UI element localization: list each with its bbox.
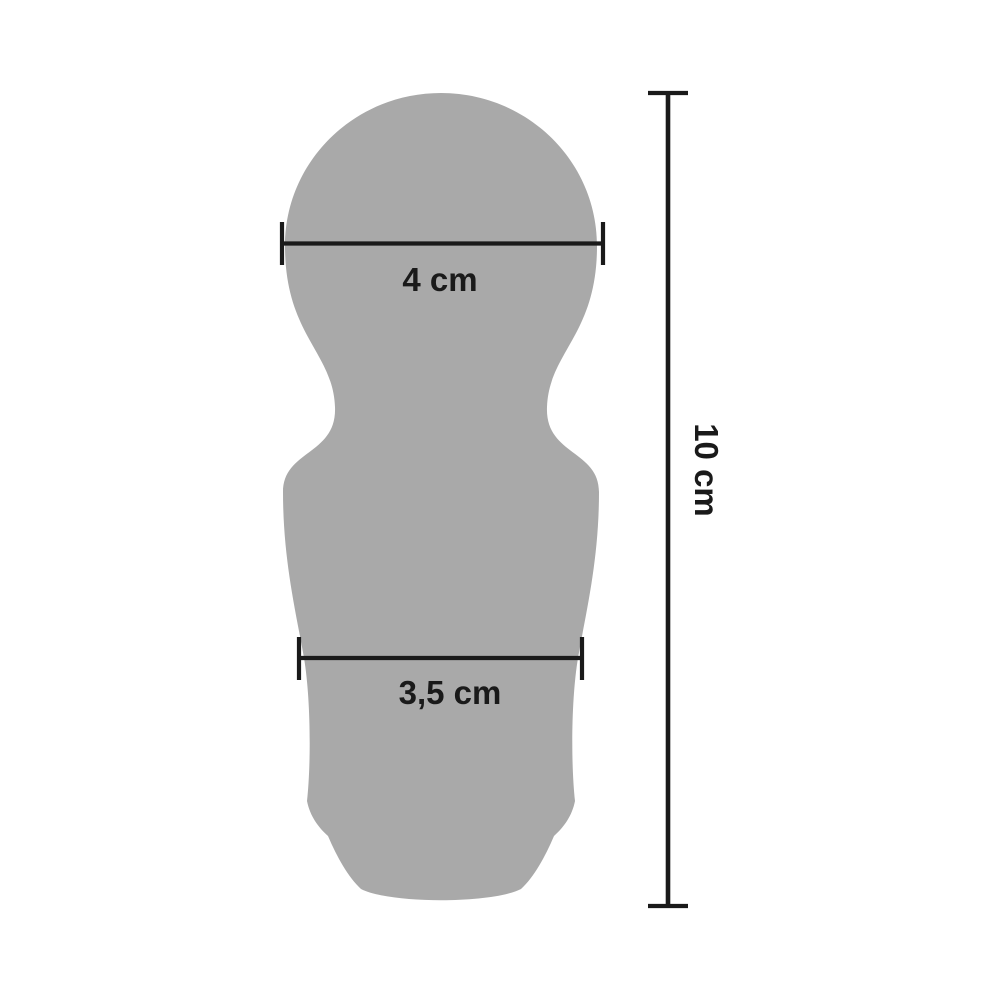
total-height-label: 10 cm	[688, 423, 725, 517]
product-silhouette	[283, 93, 599, 900]
diagram-canvas: 4 cm 3,5 cm 10 cm	[0, 0, 1000, 1000]
body-width-label: 3,5 cm	[399, 674, 502, 711]
head-width-label: 4 cm	[402, 261, 477, 298]
total-height-dimension: 10 cm	[648, 93, 725, 906]
dimension-diagram: 4 cm 3,5 cm 10 cm	[0, 0, 1000, 1000]
